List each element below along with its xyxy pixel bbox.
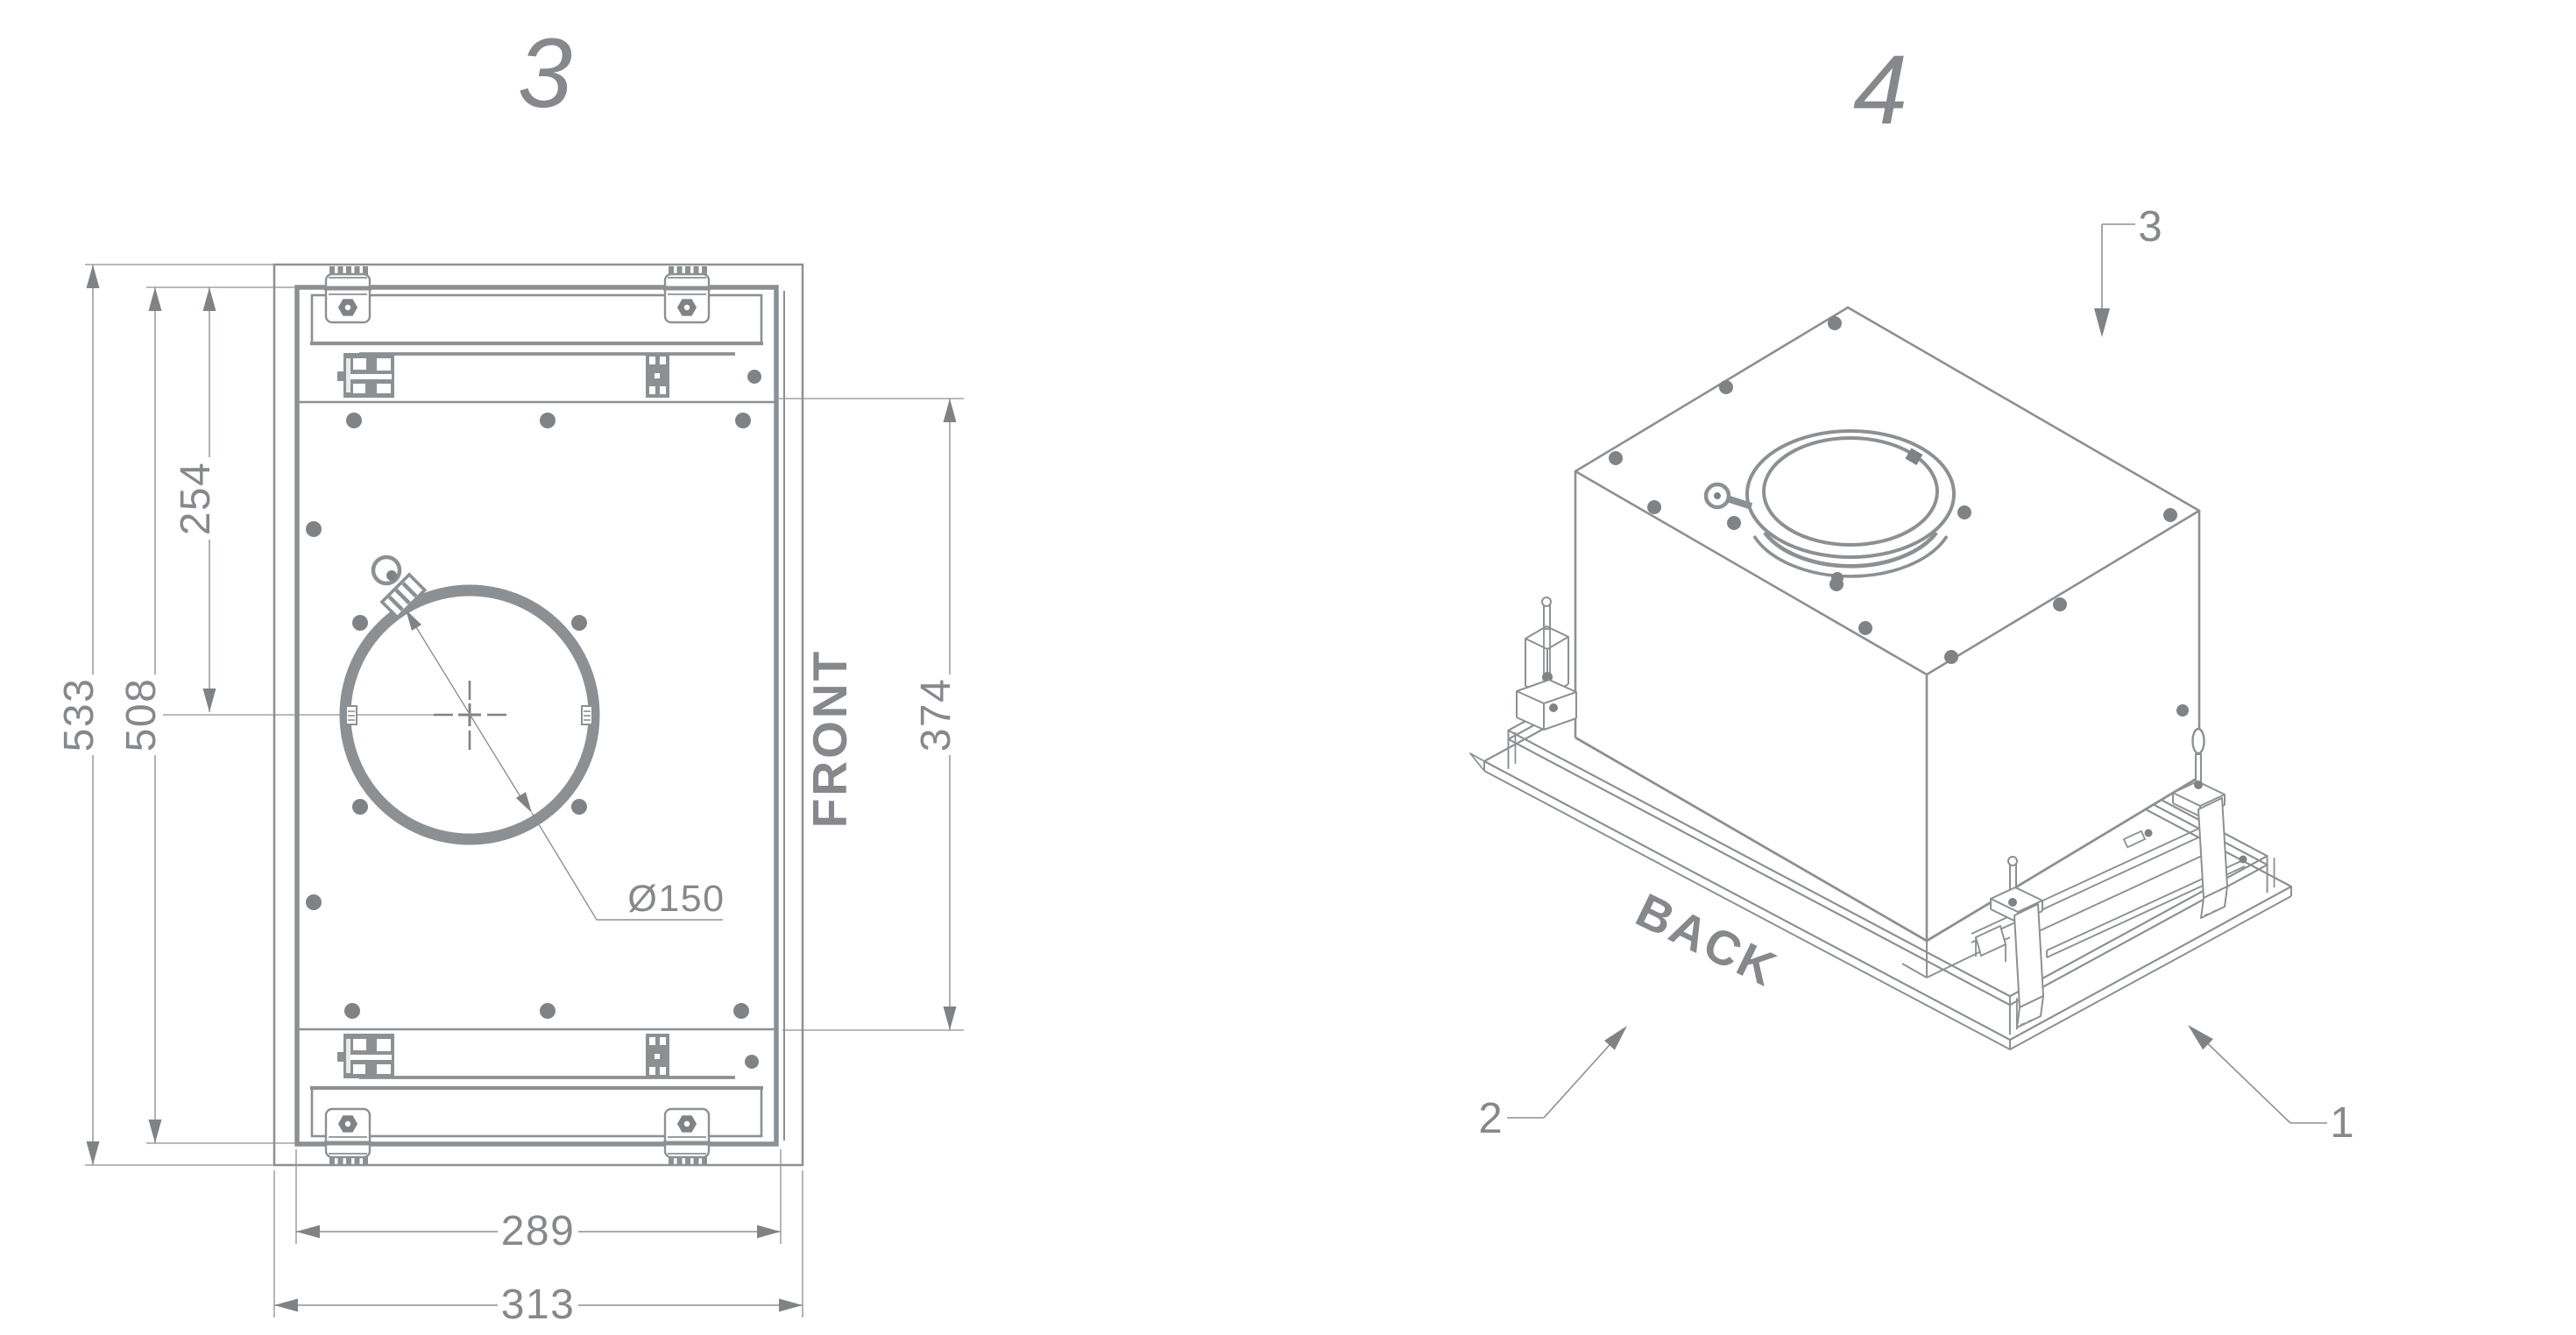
svg-text:Ø150: Ø150 — [627, 878, 725, 920]
svg-text:508: 508 — [118, 678, 165, 752]
svg-text:FRONT: FRONT — [803, 649, 857, 828]
svg-text:533: 533 — [56, 678, 103, 752]
svg-text:3: 3 — [2138, 203, 2162, 251]
svg-text:374: 374 — [913, 678, 959, 752]
svg-text:3: 3 — [518, 18, 572, 128]
svg-text:4: 4 — [1853, 35, 1907, 145]
svg-text:289: 289 — [501, 1208, 576, 1254]
svg-text:2: 2 — [1478, 1095, 1502, 1142]
svg-text:1: 1 — [2330, 1099, 2353, 1147]
svg-text:313: 313 — [501, 1282, 576, 1328]
svg-text:254: 254 — [173, 462, 219, 536]
